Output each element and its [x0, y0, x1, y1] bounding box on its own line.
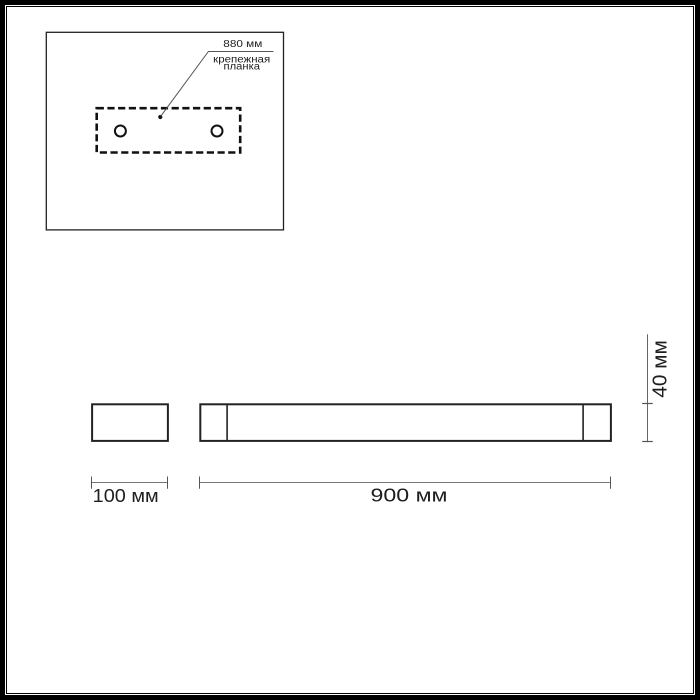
- svg-text:900 мм: 900 мм: [371, 485, 448, 506]
- svg-text:880 мм: 880 мм: [223, 38, 262, 50]
- svg-text:планка: планка: [224, 62, 261, 73]
- svg-text:40 мм: 40 мм: [650, 340, 672, 398]
- svg-text:100 мм: 100 мм: [93, 485, 159, 506]
